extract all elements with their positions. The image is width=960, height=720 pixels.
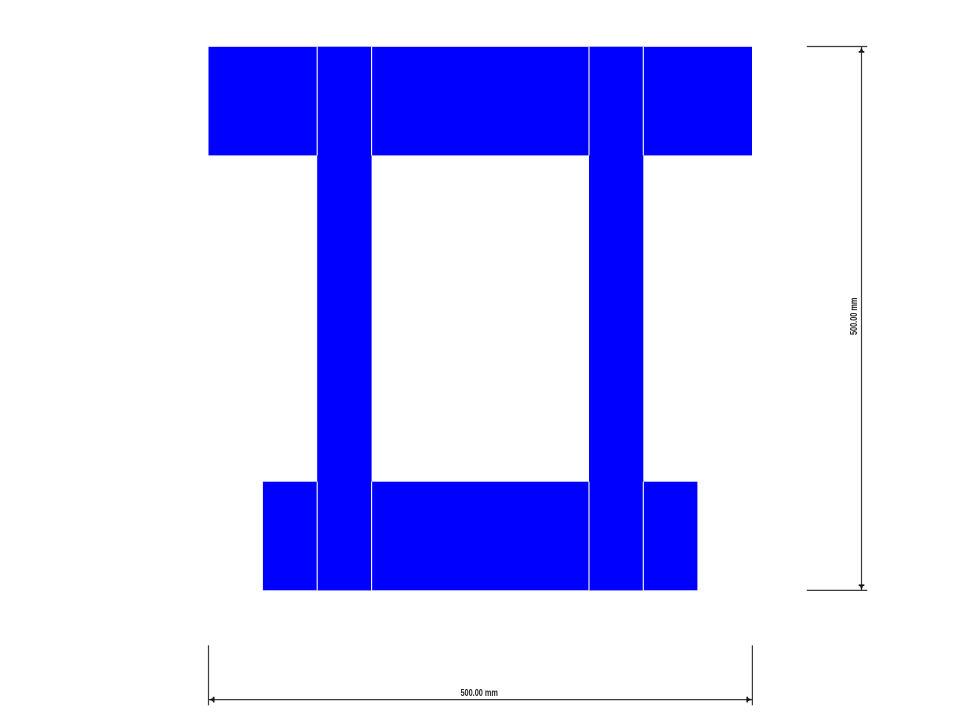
- svg-text:500.00 mm: 500.00 mm: [849, 297, 860, 335]
- svg-text:500.00 mm: 500.00 mm: [460, 688, 498, 699]
